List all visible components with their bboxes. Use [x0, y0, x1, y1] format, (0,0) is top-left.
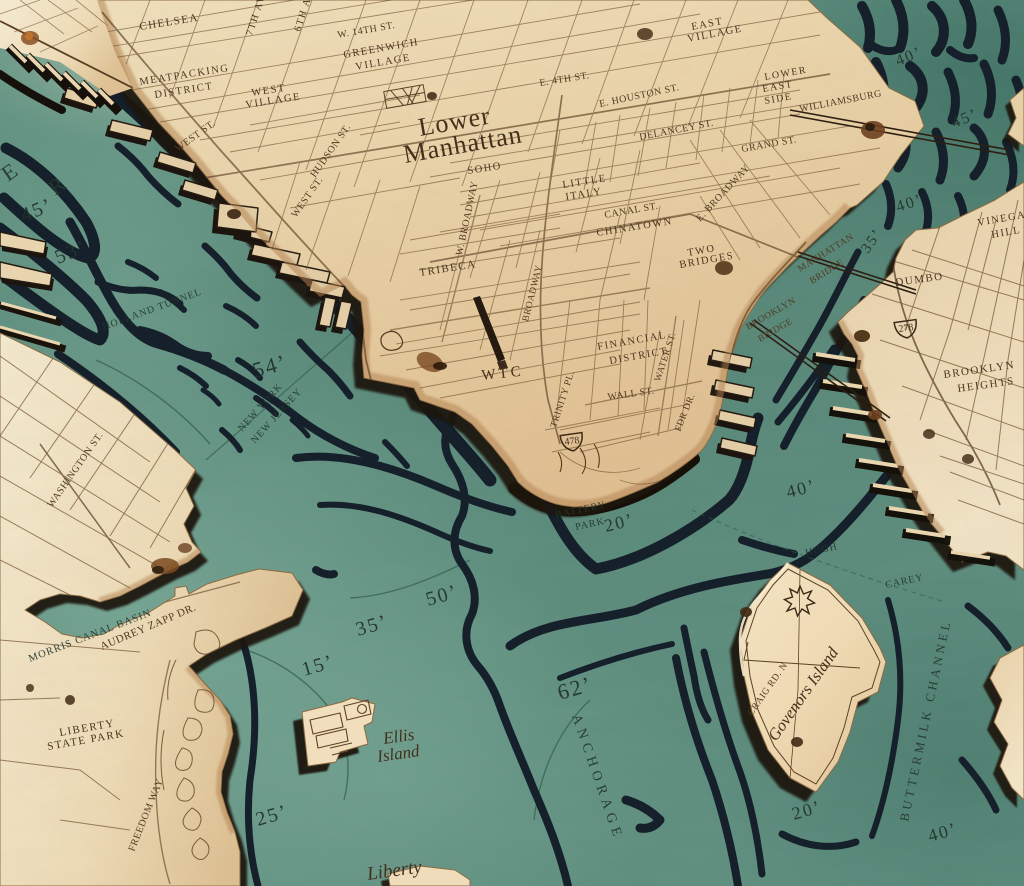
svg-text:278: 278 [898, 322, 914, 335]
svg-text:478: 478 [564, 435, 580, 448]
